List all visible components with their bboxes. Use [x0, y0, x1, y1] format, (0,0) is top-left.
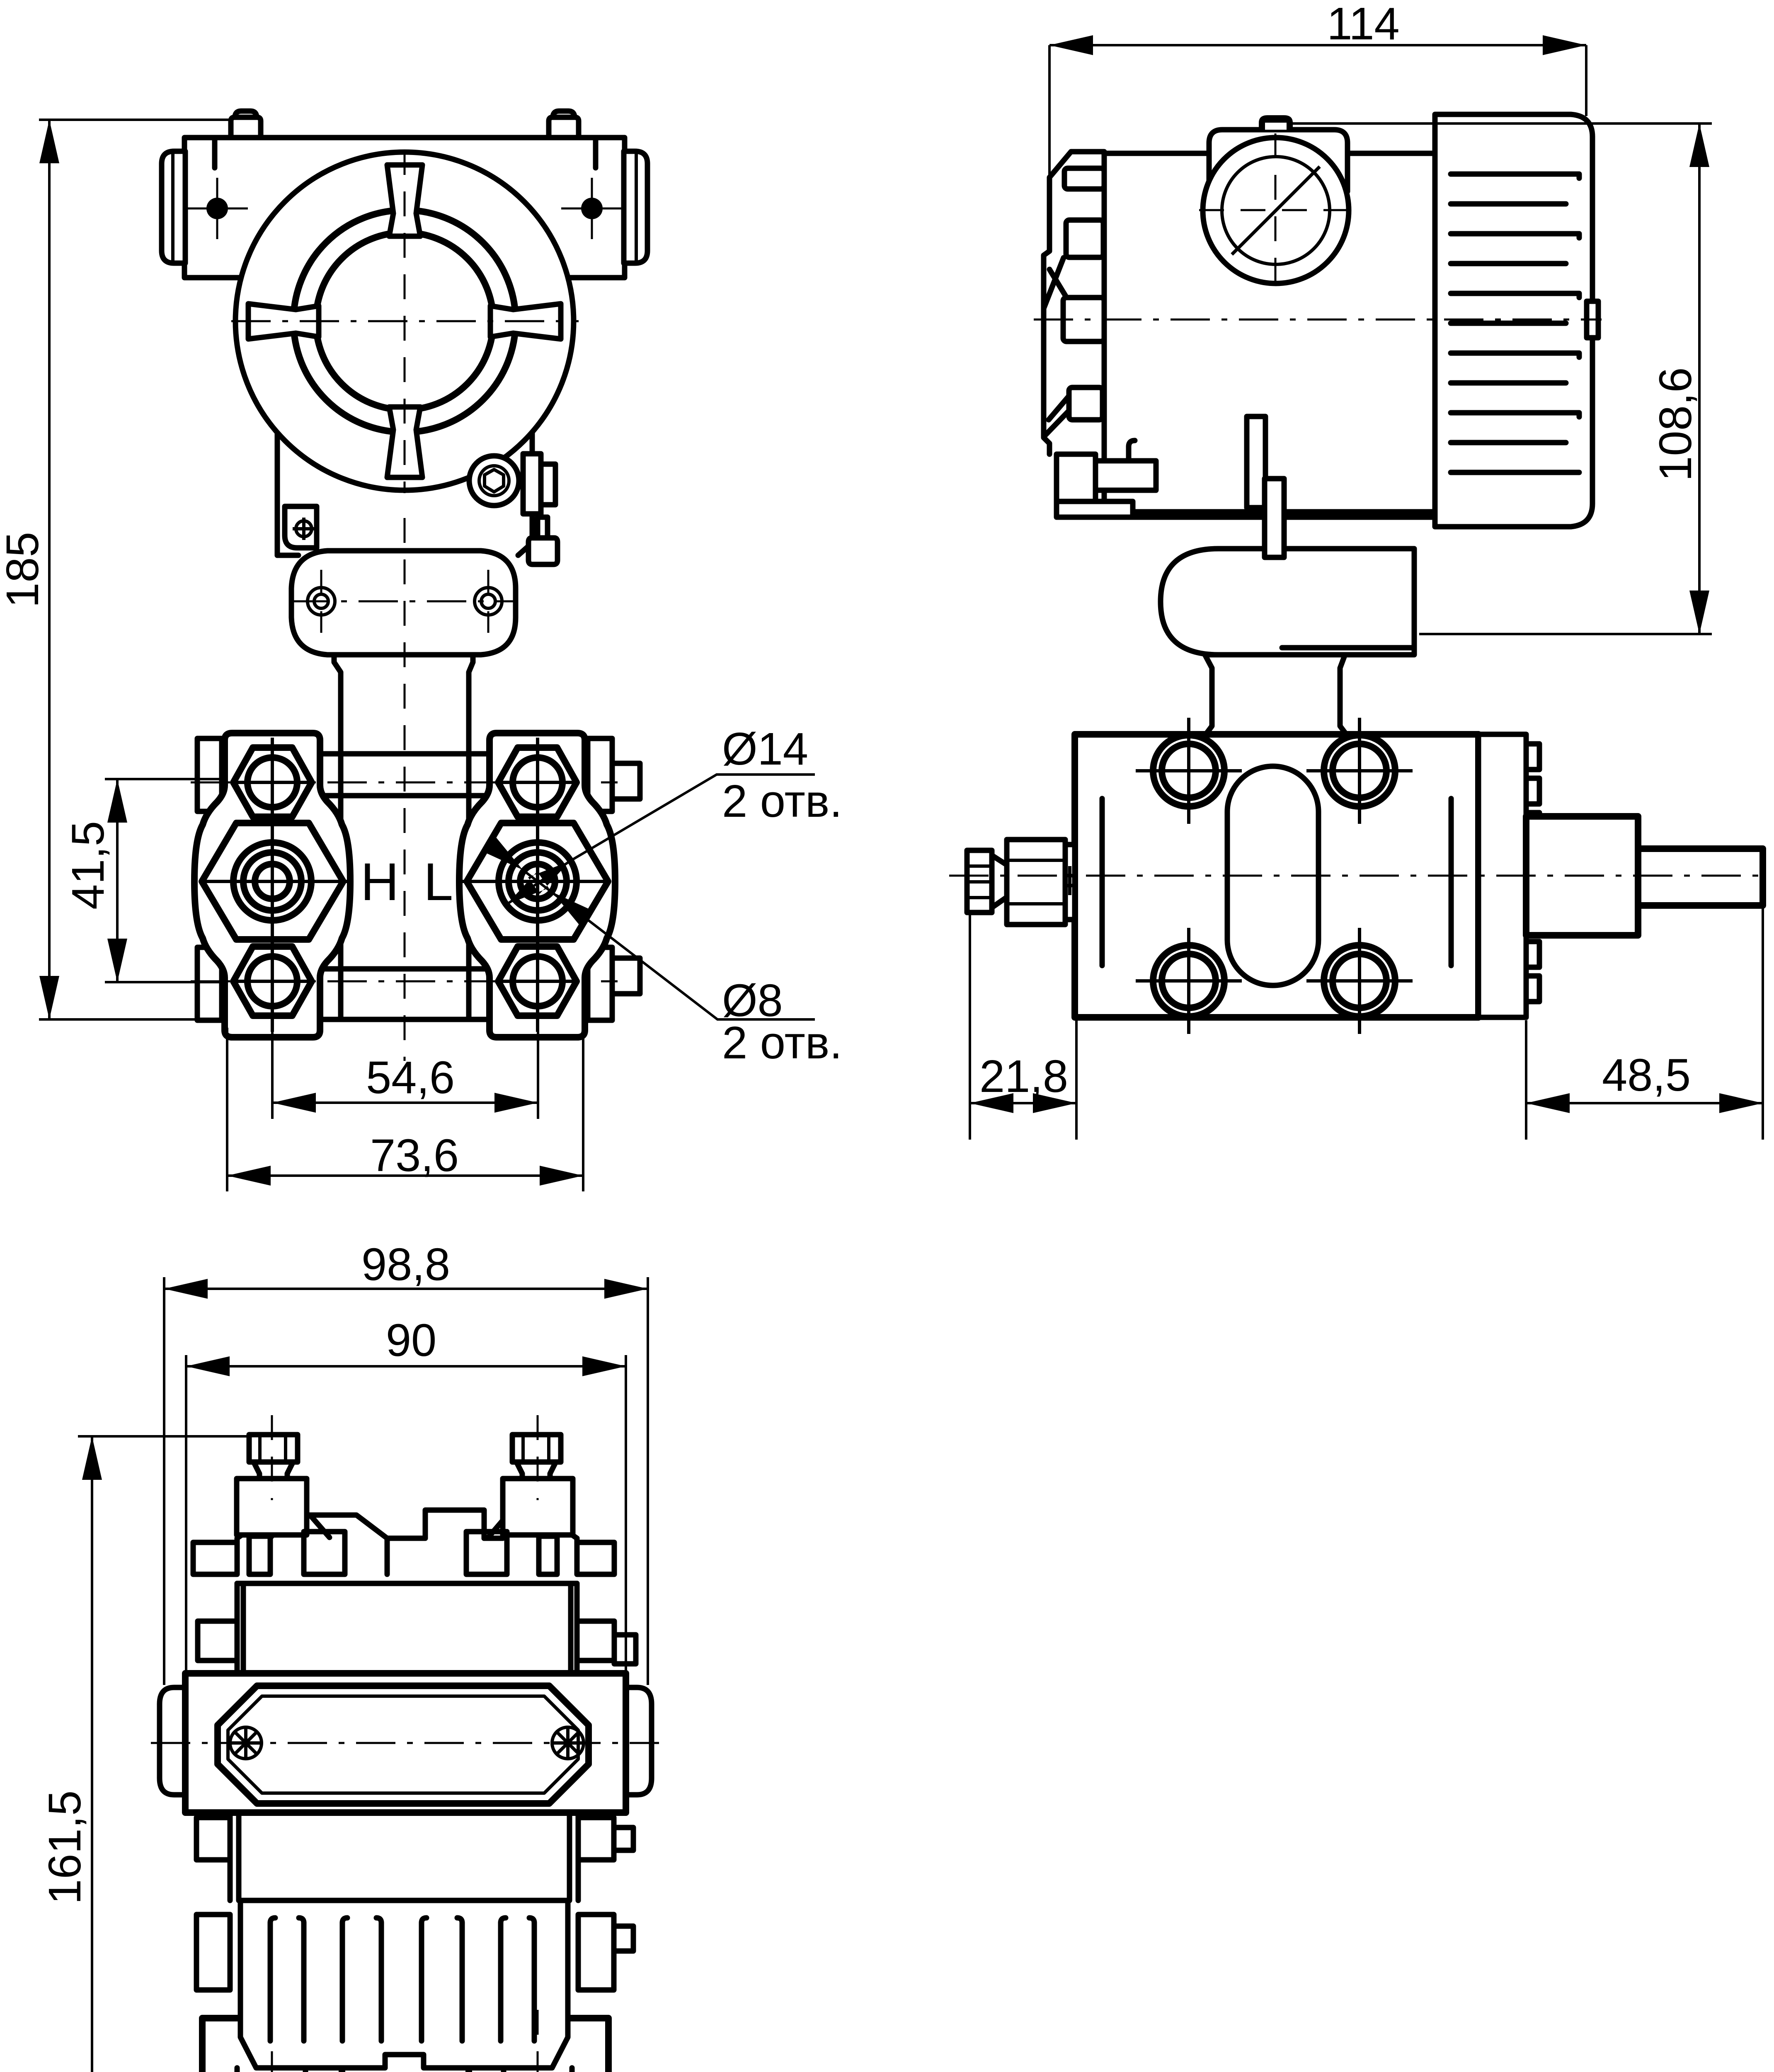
svg-text:2 отв.: 2 отв.	[722, 776, 842, 827]
svg-text:2 отв.: 2 отв.	[722, 1017, 842, 1068]
svg-text:41,5: 41,5	[63, 821, 114, 910]
svg-text:H: H	[361, 852, 399, 912]
svg-text:48,5: 48,5	[1602, 1050, 1691, 1101]
svg-text:L: L	[424, 852, 453, 912]
svg-text:54,6: 54,6	[366, 1052, 455, 1103]
svg-text:21,8: 21,8	[979, 1051, 1068, 1102]
svg-text:90: 90	[386, 1315, 436, 1366]
svg-text:98,8: 98,8	[361, 1239, 450, 1290]
svg-text:185: 185	[0, 532, 48, 608]
svg-text:73,6: 73,6	[370, 1130, 459, 1181]
svg-text:Ø14: Ø14	[722, 724, 808, 775]
svg-text:108,6: 108,6	[1650, 367, 1701, 481]
svg-text:114: 114	[1327, 0, 1399, 49]
svg-text:161,5: 161,5	[39, 1790, 90, 1904]
